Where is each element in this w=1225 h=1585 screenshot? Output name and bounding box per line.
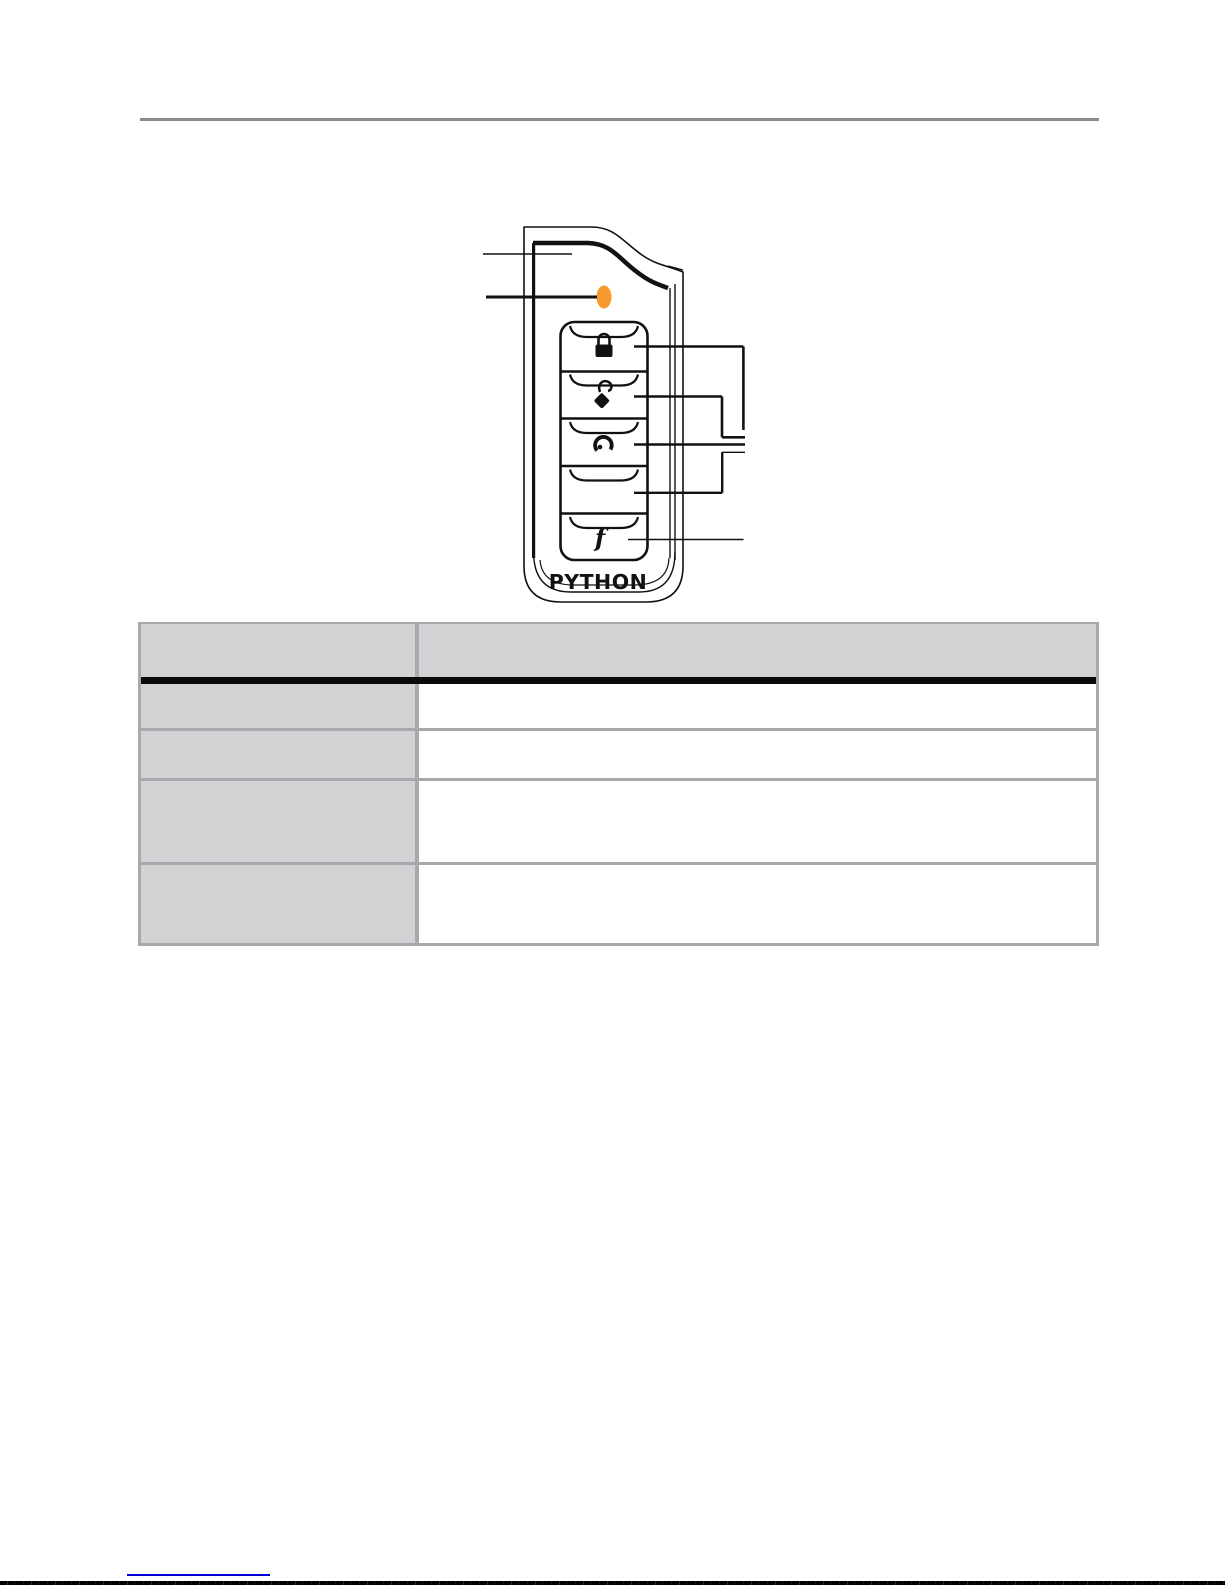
led-indicator: [597, 286, 612, 309]
table-row: [141, 684, 1096, 731]
callout-unlock-line: [634, 397, 745, 438]
footer-link-underline[interactable]: [127, 1574, 270, 1576]
table-row: [141, 865, 1096, 943]
row-label-cell: [141, 865, 419, 943]
remote-shell-swoosh: [533, 243, 668, 288]
table-row: [141, 731, 1096, 781]
remote-figure: f PYTHON: [470, 215, 760, 615]
feature-table: [138, 622, 1099, 946]
manual-page: { "page": { "background": "#ffffff", "to…: [0, 0, 1225, 1585]
table-header-feature: [141, 624, 419, 677]
row-description-cell: [419, 731, 1096, 778]
brand-logo: PYTHON: [549, 570, 648, 594]
callout-lock-line: [634, 347, 743, 431]
remote-right-inner-edges: [670, 284, 675, 560]
row-description-cell: [419, 865, 1096, 943]
row-label-cell: [141, 781, 419, 862]
row-label-cell: [141, 731, 419, 778]
row-description-cell: [419, 781, 1096, 862]
table-row: [141, 781, 1096, 865]
table-header-row: [141, 624, 1096, 677]
row-description-cell: [419, 684, 1096, 728]
row-label-cell: [141, 684, 419, 728]
page-edge-artifact: [0, 1581, 1225, 1585]
header-separator: [141, 677, 1096, 684]
top-divider: [140, 118, 1099, 121]
table-header-description: [419, 624, 1096, 677]
